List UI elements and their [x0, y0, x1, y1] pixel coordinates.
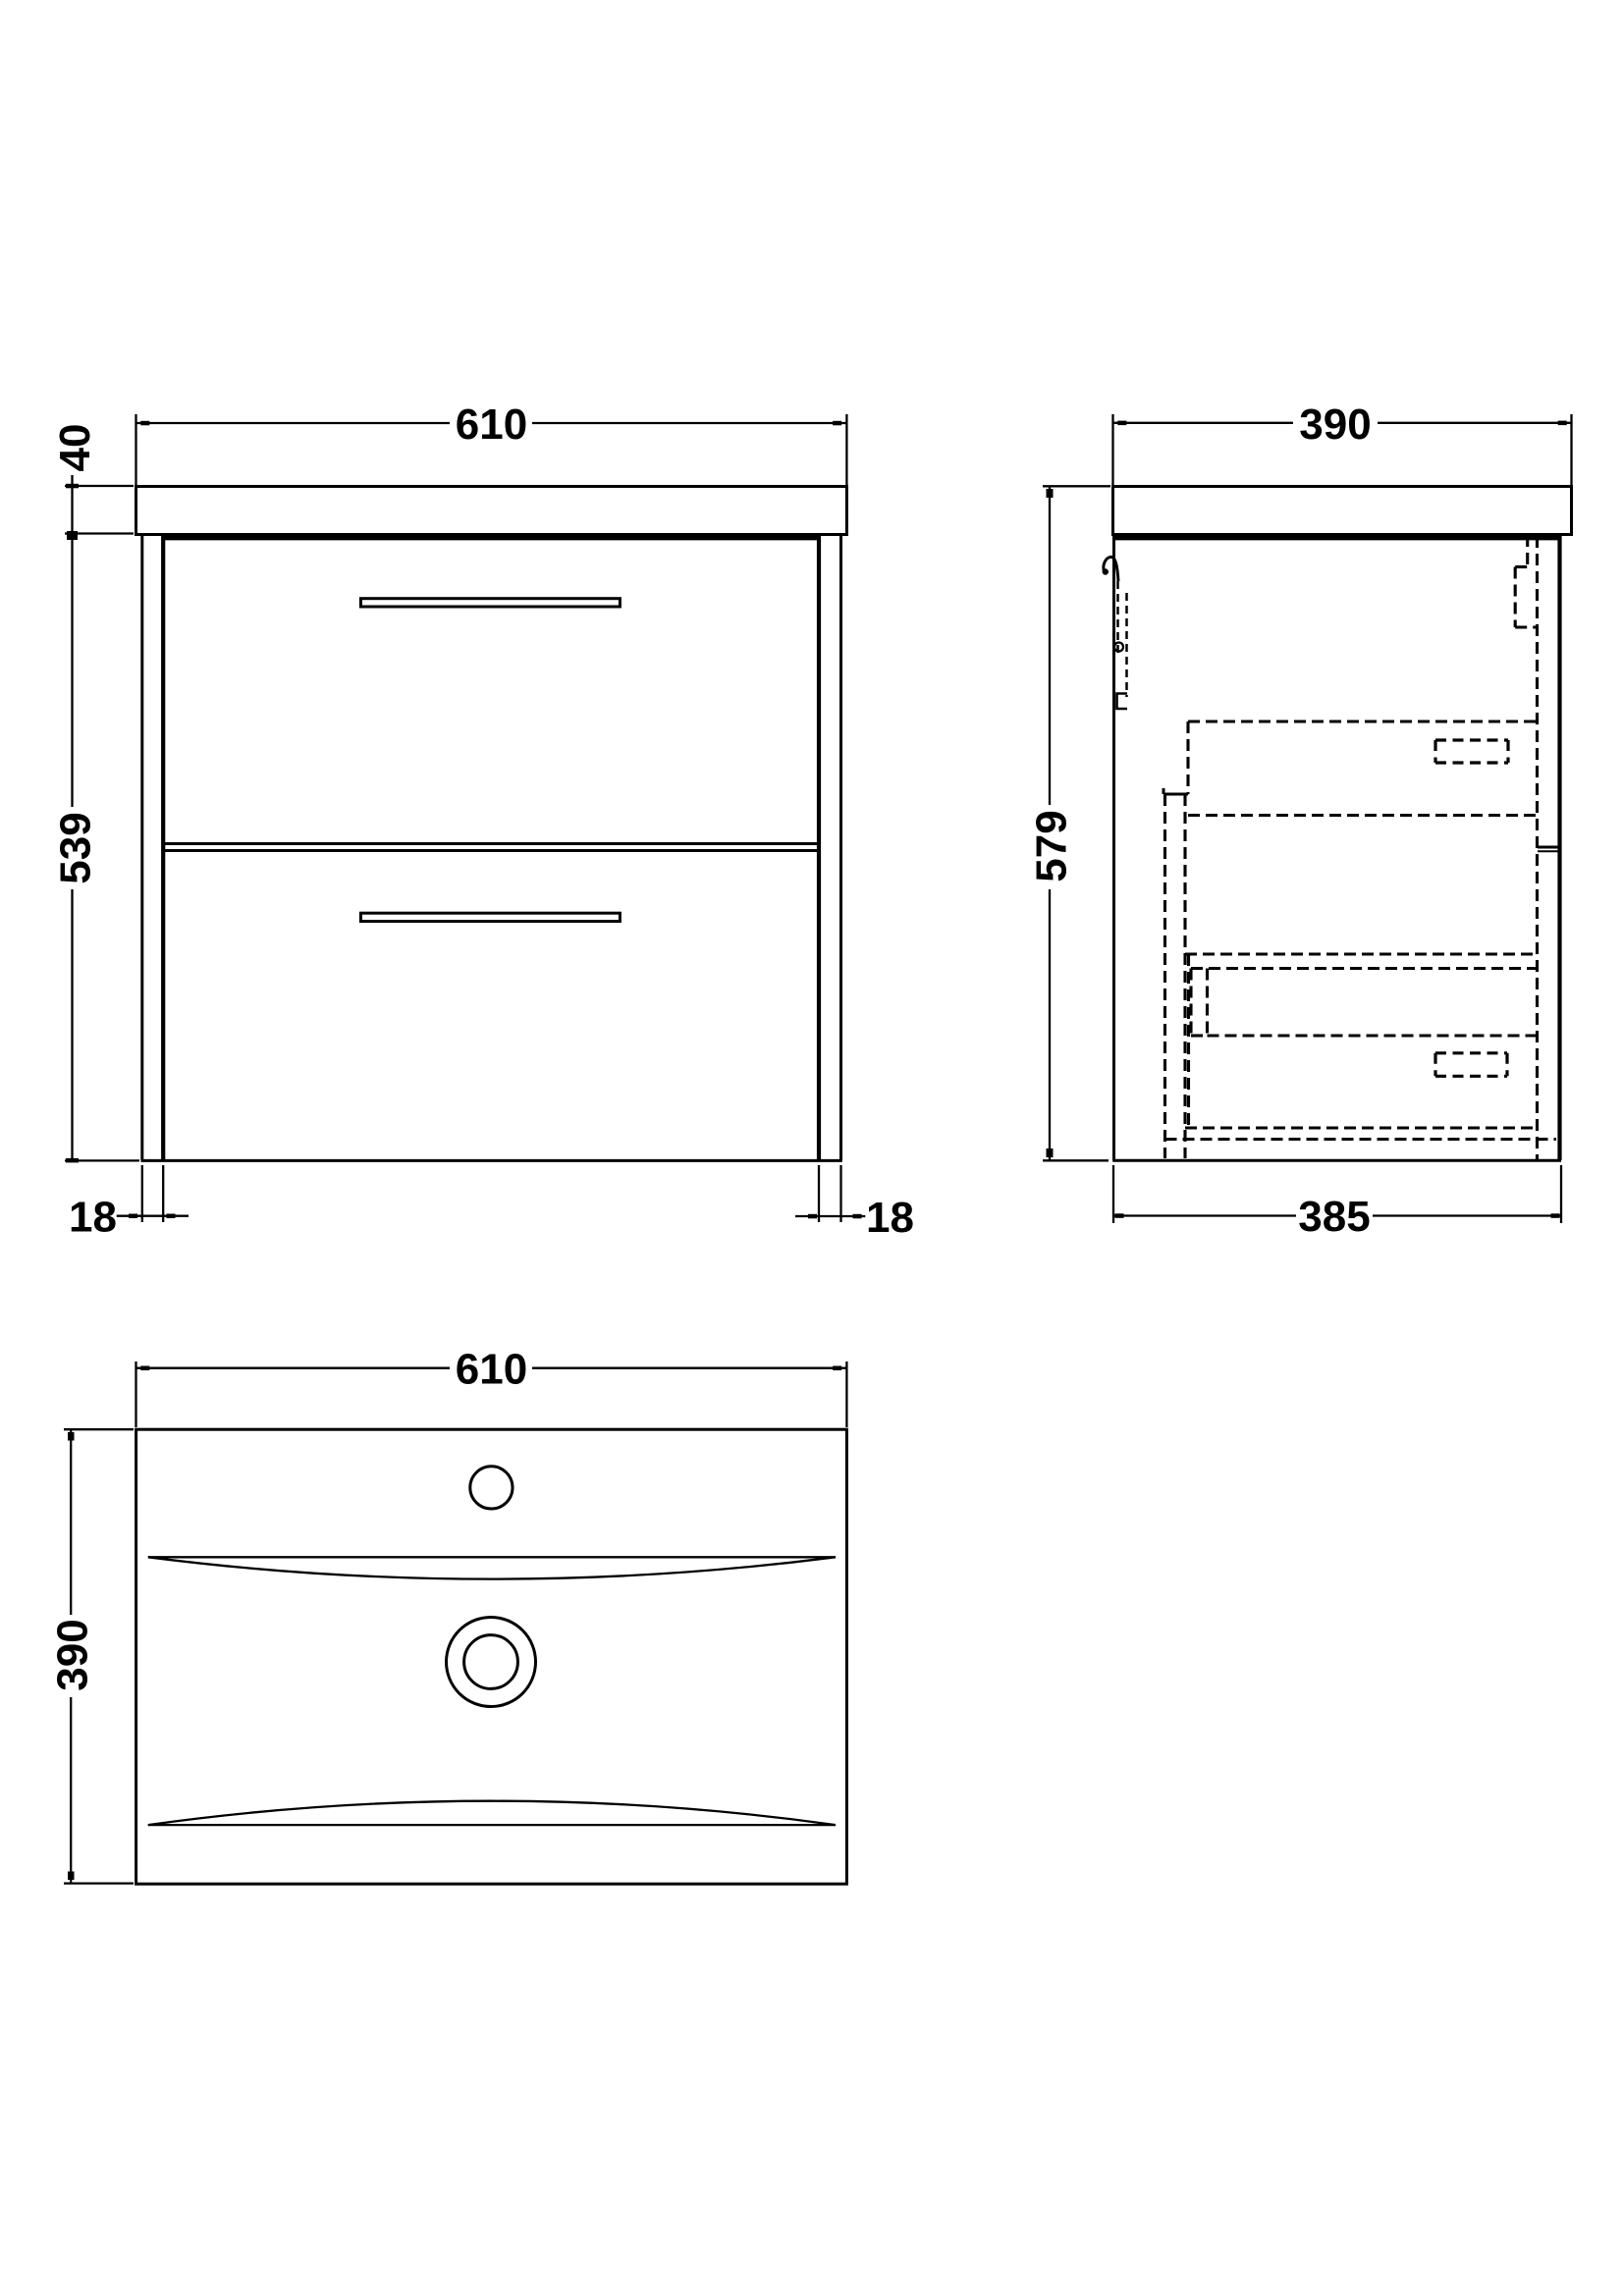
svg-text:390: 390: [1299, 400, 1371, 449]
svg-text:579: 579: [1028, 810, 1076, 881]
svg-text:539: 539: [52, 812, 100, 883]
svg-text:18: 18: [866, 1194, 914, 1242]
svg-text:385: 385: [1298, 1193, 1370, 1241]
svg-text:610: 610: [456, 1346, 527, 1394]
svg-text:610: 610: [456, 400, 527, 449]
svg-text:40: 40: [51, 424, 99, 472]
svg-text:18: 18: [69, 1194, 117, 1242]
svg-text:390: 390: [49, 1619, 97, 1690]
